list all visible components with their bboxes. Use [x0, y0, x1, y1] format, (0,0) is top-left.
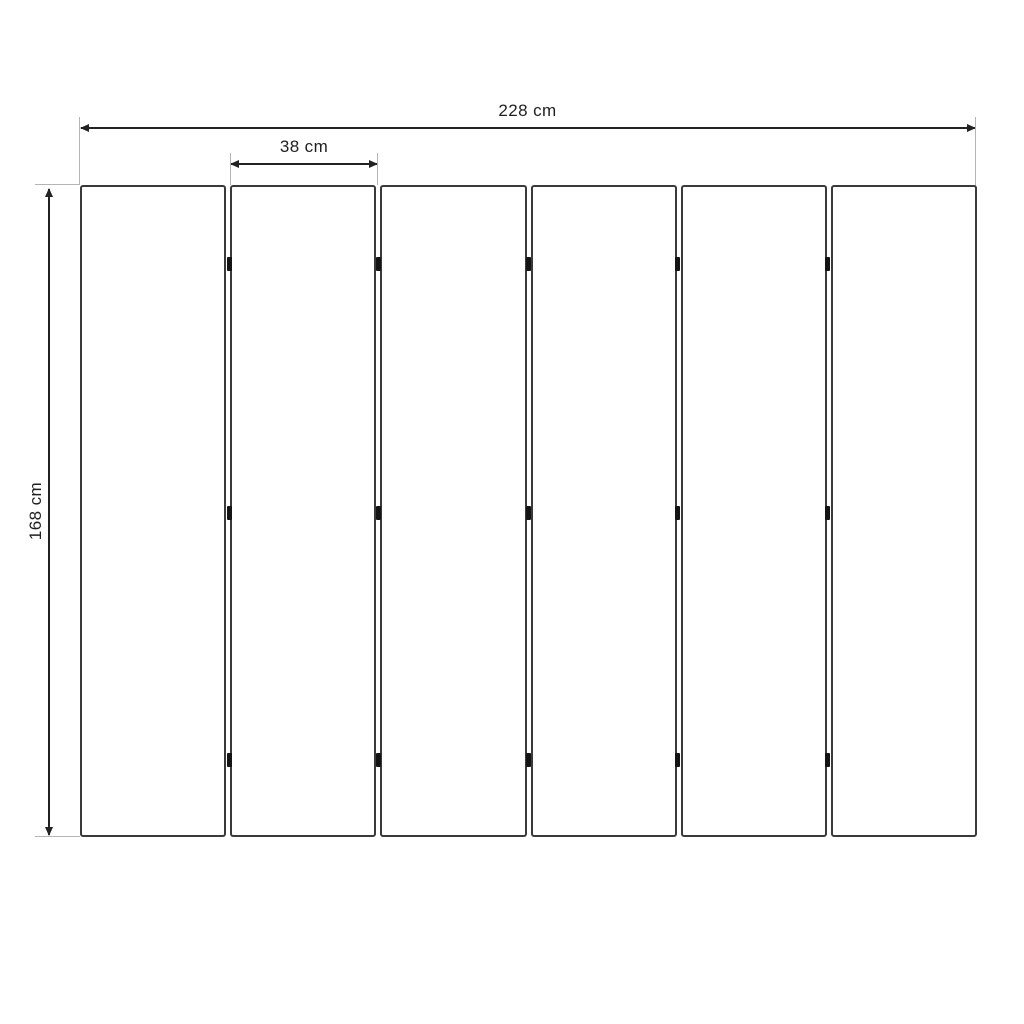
panel-4 — [531, 185, 677, 837]
hinge-icon — [376, 257, 381, 271]
extension-line-panel-right — [377, 153, 378, 185]
hinge-icon — [526, 257, 531, 271]
hinge-icon — [825, 753, 830, 767]
panel-6 — [831, 185, 977, 837]
hinge-icon — [526, 753, 531, 767]
hinge-icon — [227, 753, 232, 767]
extension-line-total-left — [79, 117, 80, 185]
hinge-icon — [227, 506, 232, 520]
extension-line-height-top — [35, 184, 80, 185]
arrow-up-icon — [45, 188, 53, 197]
panels-row — [80, 185, 977, 837]
panel-2 — [230, 185, 376, 837]
panel-layout-diagram: 228 cm 38 cm 168 cm — [0, 0, 1024, 1024]
panel-3 — [380, 185, 526, 837]
hinge-icon — [675, 753, 680, 767]
total-width-dimension-line — [81, 127, 975, 129]
height-dimension-line — [48, 189, 50, 835]
height-dimension-label: 168 cm — [25, 426, 47, 596]
arrow-left-icon — [230, 160, 239, 168]
panel-width-dimension-line — [231, 163, 377, 165]
hinge-icon — [227, 257, 232, 271]
panel-5 — [681, 185, 827, 837]
extension-line-total-right — [975, 117, 976, 186]
hinge-icon — [376, 506, 381, 520]
arrow-left-icon — [80, 124, 89, 132]
extension-line-panel-left — [230, 153, 231, 185]
arrow-down-icon — [45, 827, 53, 836]
hinge-icon — [376, 753, 381, 767]
hinge-icon — [675, 506, 680, 520]
panel-width-dimension-label: 38 cm — [231, 136, 377, 158]
hinge-icon — [526, 506, 531, 520]
hinge-icon — [825, 506, 830, 520]
total-width-dimension-label: 228 cm — [80, 100, 975, 122]
extension-line-height-bottom — [35, 836, 80, 837]
panel-1 — [80, 185, 226, 837]
hinge-icon — [825, 257, 830, 271]
hinge-icon — [675, 257, 680, 271]
